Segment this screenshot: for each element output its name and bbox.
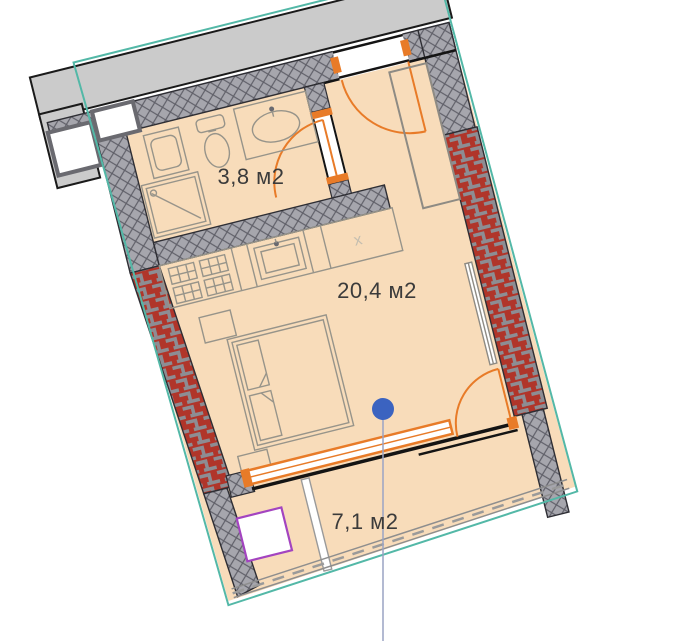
floor-plan-drawing: х: [0, 0, 696, 641]
room-area-label-balcony: 7,1 м2: [331, 509, 398, 535]
outdoor-unit: [237, 507, 292, 561]
floor-plan-canvas: х: [0, 0, 696, 641]
marker-dot[interactable]: [372, 398, 394, 420]
room-area-label-bathroom: 3,8 м2: [217, 164, 284, 190]
room-area-label-living-room: 20,4 м2: [337, 278, 417, 304]
